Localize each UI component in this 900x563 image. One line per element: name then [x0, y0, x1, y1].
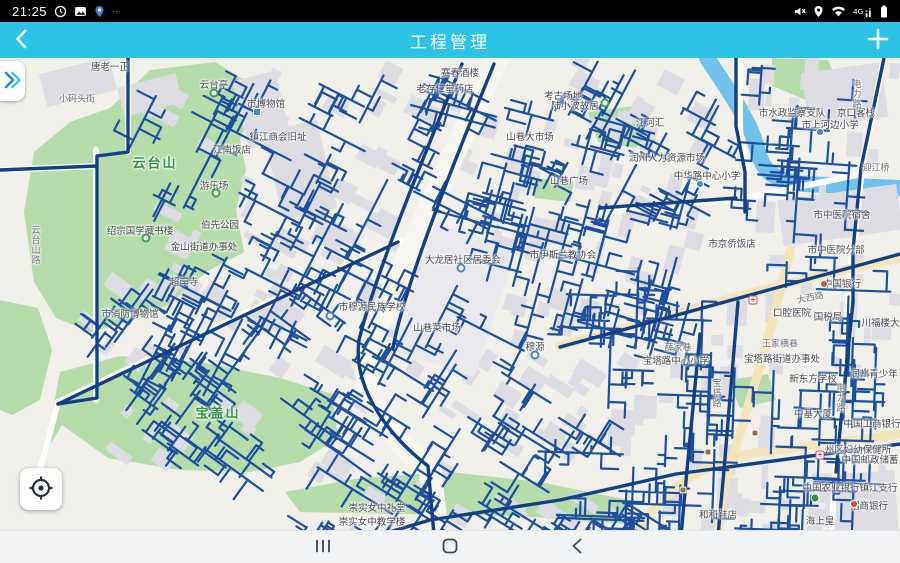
signal-4g-icon: 4G: [853, 5, 873, 17]
location-pin-icon: [813, 5, 824, 18]
back-button[interactable]: [0, 22, 44, 58]
mute-icon: [793, 5, 806, 18]
app-screen: 21:25 ·· 4G: [0, 0, 900, 563]
home-button[interactable]: [439, 536, 461, 558]
gallery-icon: [74, 5, 87, 18]
chevron-left-icon: [12, 29, 32, 52]
plus-icon: [867, 28, 889, 53]
back-icon: [571, 538, 583, 557]
crosshair-icon: [28, 475, 54, 504]
locate-button[interactable]: [20, 468, 62, 510]
status-time: 21:25: [12, 4, 47, 19]
app-bar: 工程管理: [0, 22, 900, 58]
svg-text:4G: 4G: [853, 7, 864, 16]
location-pin-icon: [94, 5, 105, 18]
double-chevron-right-icon: [3, 69, 23, 94]
status-bar: 21:25 ·· 4G: [0, 0, 900, 22]
back-nav-button[interactable]: [566, 536, 588, 558]
home-icon: [442, 538, 458, 557]
expand-panel-button[interactable]: [0, 61, 25, 101]
wifi-icon: [831, 5, 846, 17]
battery-icon: [880, 5, 888, 18]
recents-icon: [315, 539, 331, 556]
clock-icon: [54, 5, 67, 18]
page-title: 工程管理: [0, 28, 900, 53]
map-base-layer: [0, 58, 900, 530]
recents-button[interactable]: [312, 536, 334, 558]
more-notifications-icon: ··: [112, 6, 119, 17]
navigation-bar: [0, 530, 900, 563]
add-button[interactable]: [856, 22, 900, 58]
map-canvas[interactable]: 唐老一正云台亭市博物馆小码头街镇江商会旧址江南饭店云台山游乐场伯先公园绍宗国学藏…: [0, 58, 900, 530]
